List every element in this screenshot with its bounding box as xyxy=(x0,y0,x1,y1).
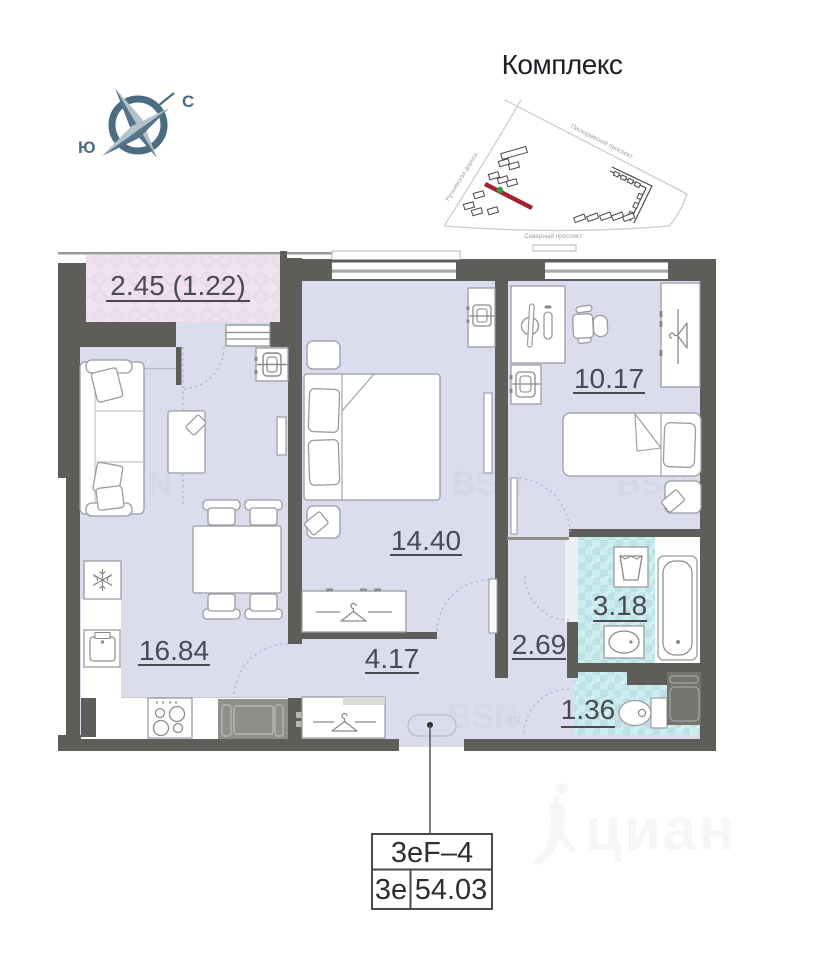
svg-text:16.84: 16.84 xyxy=(139,635,209,666)
svg-text:Комплекс: Комплекс xyxy=(502,49,623,80)
svg-text:С: С xyxy=(182,92,194,111)
svg-text:10.17: 10.17 xyxy=(574,363,644,394)
svg-text:14.40: 14.40 xyxy=(391,525,461,556)
svg-text:2.69: 2.69 xyxy=(512,629,567,660)
svg-text:3еF–4: 3еF–4 xyxy=(391,837,473,869)
svg-text:циан: циан xyxy=(585,796,736,863)
svg-text:Пискаревский проспект: Пискаревский проспект xyxy=(569,122,634,160)
svg-text:3.18: 3.18 xyxy=(593,590,648,621)
svg-text:54.03: 54.03 xyxy=(415,874,488,906)
svg-text:Ю: Ю xyxy=(78,138,96,157)
svg-text:RU: RU xyxy=(506,715,520,726)
svg-text:3е: 3е xyxy=(375,874,407,906)
svg-text:2.45 (1.22): 2.45 (1.22) xyxy=(110,270,245,301)
svg-text:4.17: 4.17 xyxy=(365,643,420,674)
svg-text:Северный проспект: Северный проспект xyxy=(524,232,582,240)
svg-text:1.36: 1.36 xyxy=(561,694,616,725)
